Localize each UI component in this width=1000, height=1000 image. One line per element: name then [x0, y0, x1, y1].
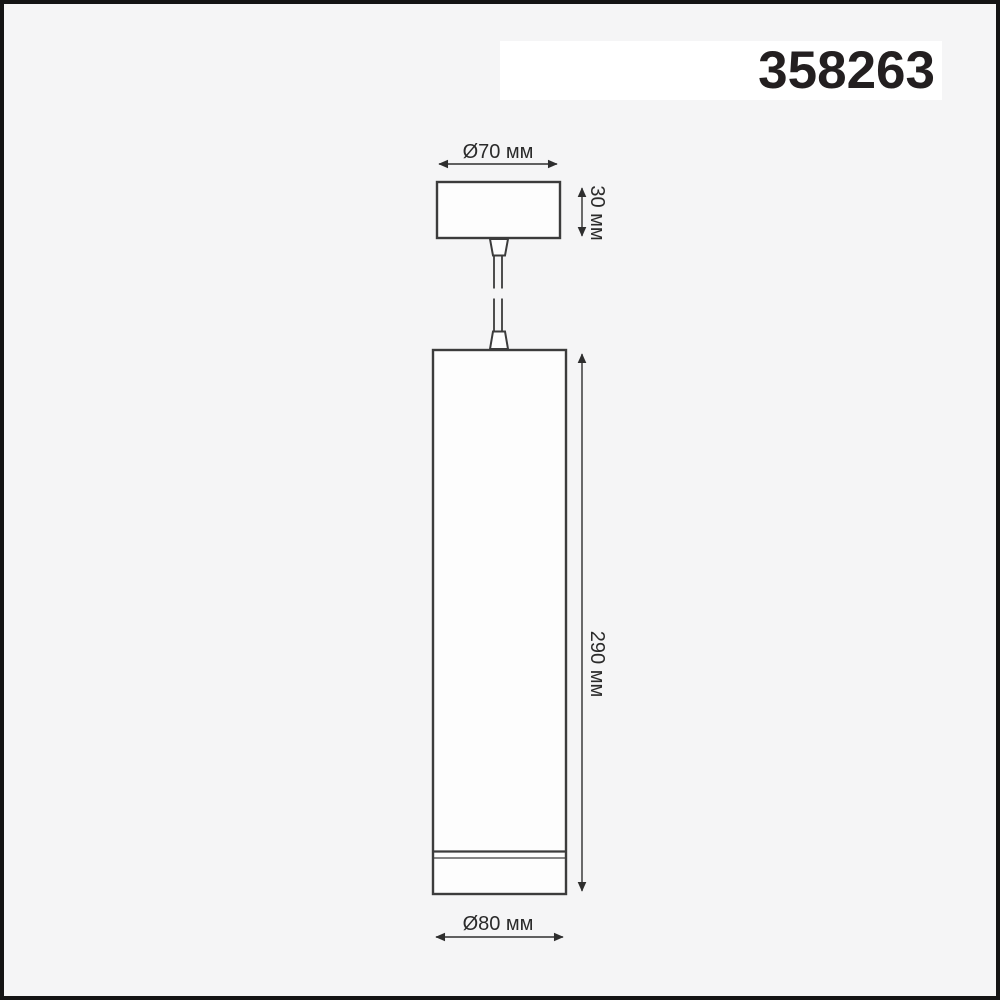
cord-grip-bottom	[490, 332, 508, 350]
dim-body-height-label: 290 мм	[586, 631, 608, 697]
product-drawing-page: 358263	[0, 0, 1000, 1000]
suspension-wire-lower	[494, 299, 502, 332]
suspension-wire-upper	[494, 256, 502, 289]
lamp-body-outline	[433, 350, 566, 894]
dim-canopy-height-label: 30 мм	[586, 185, 608, 240]
technical-drawing: Ø70 мм 30 мм 290 мм Ø80 мм	[4, 4, 996, 996]
dim-top-diameter-label: Ø70 мм	[463, 141, 534, 163]
dim-bottom-diameter-label: Ø80 мм	[463, 913, 534, 935]
cord-grip-top	[490, 239, 508, 256]
canopy-outline	[437, 182, 560, 238]
